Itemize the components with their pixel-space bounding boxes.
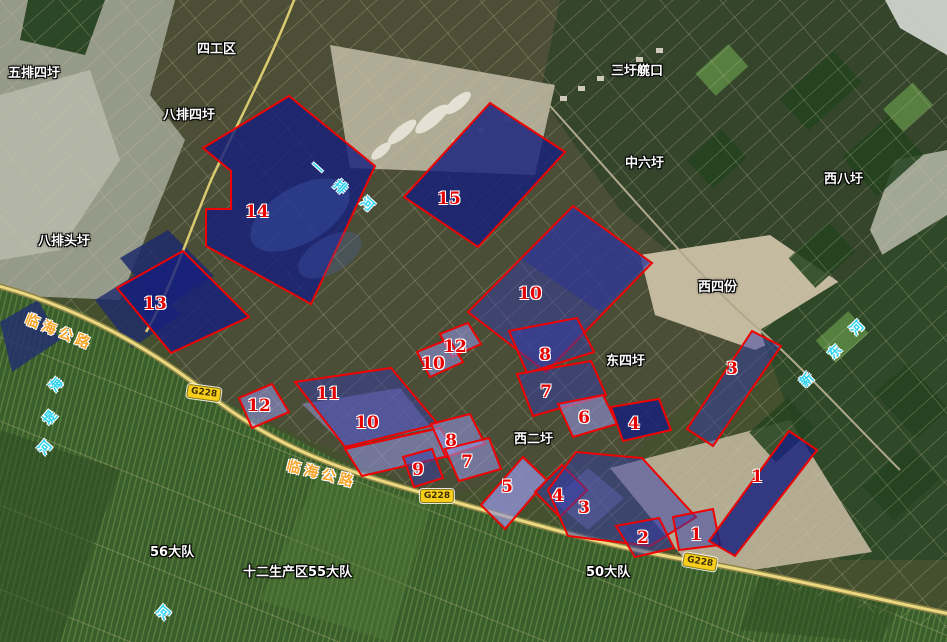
satellite-imagery (0, 0, 947, 642)
satellite-map-view[interactable]: 五排四圩四工区八排四圩三圩艞口中六圩西八圩八排头圩西四份东四圩西二圩56大队十二… (0, 0, 947, 642)
